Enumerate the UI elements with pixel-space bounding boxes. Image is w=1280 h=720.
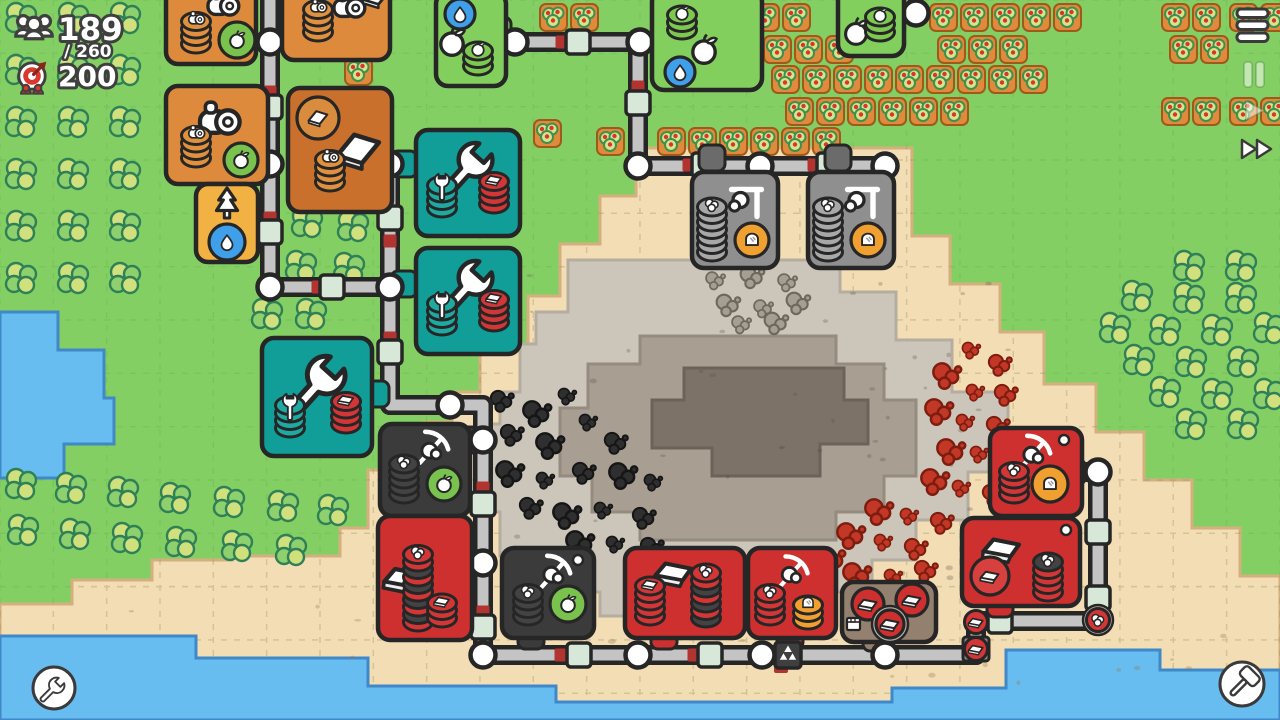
belt-node[interactable] bbox=[258, 275, 283, 300]
fruit-tile bbox=[783, 4, 810, 31]
fruit-tile bbox=[1162, 4, 1189, 31]
tree-cluster bbox=[110, 159, 140, 189]
fruit-tile bbox=[1054, 4, 1081, 31]
belt-node[interactable] bbox=[628, 30, 653, 55]
fruit-tile bbox=[1000, 36, 1027, 63]
fruit-tile bbox=[1193, 4, 1220, 31]
fruit-tile bbox=[795, 36, 822, 63]
belt-item bbox=[1083, 605, 1113, 635]
belt-item bbox=[965, 611, 988, 634]
tree-cluster bbox=[286, 251, 316, 281]
fruit-tile bbox=[969, 36, 996, 63]
hud-bottom-right bbox=[1196, 650, 1280, 720]
tree-cluster bbox=[222, 531, 252, 561]
fruit-tile bbox=[938, 36, 965, 63]
building-house[interactable] bbox=[282, 0, 390, 60]
tree-cluster bbox=[1228, 347, 1258, 377]
tree-cluster bbox=[60, 519, 90, 549]
belt-node[interactable] bbox=[471, 643, 496, 668]
fruit-tile bbox=[786, 98, 813, 125]
fruit-tile bbox=[930, 4, 957, 31]
goal-icon bbox=[19, 62, 47, 94]
game-map: 189 / 260 200 bbox=[0, 0, 1280, 720]
belt-connector[interactable] bbox=[258, 220, 282, 244]
fruit-tile bbox=[534, 120, 561, 147]
menu-icon bbox=[1237, 9, 1268, 42]
tree-cluster bbox=[318, 495, 348, 525]
tree-cluster bbox=[252, 299, 282, 329]
tree-cluster bbox=[58, 263, 88, 293]
tree-cluster bbox=[56, 473, 86, 503]
fruit-tile bbox=[772, 66, 799, 93]
fruit-tile bbox=[782, 128, 809, 155]
belt-node[interactable] bbox=[750, 643, 775, 668]
tree-cluster bbox=[112, 523, 142, 553]
fast-forward-button[interactable] bbox=[1242, 140, 1271, 158]
fruit-tile bbox=[658, 128, 685, 155]
fruit-tile bbox=[834, 66, 861, 93]
fruit-tile bbox=[1023, 4, 1050, 31]
fruit-tile bbox=[1170, 36, 1197, 63]
building-apple-farm[interactable] bbox=[838, 0, 904, 56]
tree-cluster bbox=[1202, 379, 1232, 409]
fruit-tile bbox=[848, 98, 875, 125]
tree-cluster bbox=[160, 483, 190, 513]
tree-cluster bbox=[296, 299, 326, 329]
belt-item bbox=[963, 637, 989, 661]
tree-cluster bbox=[1228, 409, 1258, 439]
belt-node[interactable] bbox=[378, 275, 403, 300]
fruit-tile bbox=[989, 66, 1016, 93]
belt-node[interactable] bbox=[1086, 460, 1111, 485]
pause-button[interactable] bbox=[1244, 62, 1264, 87]
belt-node[interactable] bbox=[626, 154, 651, 179]
tree-cluster bbox=[1174, 283, 1204, 313]
building-coal-mine[interactable] bbox=[380, 424, 470, 516]
menu-button[interactable] bbox=[1237, 9, 1268, 42]
building-stone-mine[interactable] bbox=[692, 172, 778, 268]
tree-cluster bbox=[1124, 345, 1154, 375]
building-apple-farm[interactable] bbox=[652, 0, 762, 90]
belt-connector[interactable] bbox=[698, 643, 722, 667]
tree-cluster bbox=[110, 263, 140, 293]
fruit-tile bbox=[992, 4, 1019, 31]
belt-connector[interactable] bbox=[1086, 520, 1110, 544]
building-apple-farm[interactable] bbox=[436, 0, 506, 86]
belt-band bbox=[384, 235, 397, 248]
fruit-tile bbox=[896, 66, 923, 93]
tree-cluster bbox=[1174, 251, 1204, 281]
belt-connector[interactable] bbox=[320, 275, 344, 299]
building-smelter[interactable] bbox=[962, 518, 1080, 606]
tree-cluster bbox=[214, 487, 244, 517]
fruit-tile bbox=[817, 98, 844, 125]
tree-cluster bbox=[1150, 315, 1180, 345]
tree-cluster bbox=[6, 211, 36, 241]
building-tool-factory[interactable] bbox=[416, 130, 520, 236]
tree-cluster bbox=[338, 211, 368, 241]
fruit-tile bbox=[1162, 98, 1189, 125]
fruit-tile bbox=[597, 128, 624, 155]
building-forester[interactable] bbox=[196, 184, 258, 262]
belt-node[interactable] bbox=[258, 30, 283, 55]
belt-node[interactable] bbox=[904, 1, 929, 26]
tree-cluster bbox=[166, 527, 196, 557]
fruit-tile bbox=[571, 4, 598, 31]
tree-cluster bbox=[108, 477, 138, 507]
belt-connector[interactable] bbox=[567, 643, 591, 667]
tree-cluster bbox=[58, 159, 88, 189]
fruit-tile bbox=[1020, 66, 1047, 93]
belt-connector[interactable] bbox=[626, 91, 650, 115]
tree-cluster bbox=[8, 515, 38, 545]
fast-forward-icon bbox=[1242, 140, 1271, 158]
fruit-tile bbox=[764, 36, 791, 63]
tree-cluster bbox=[6, 263, 36, 293]
belt-node[interactable] bbox=[873, 643, 898, 668]
tree-cluster bbox=[268, 491, 298, 521]
building-stone-mine[interactable] bbox=[808, 172, 894, 268]
belt-connector[interactable] bbox=[471, 615, 495, 639]
belt-connector[interactable] bbox=[378, 340, 402, 364]
hammer-build-button[interactable] bbox=[1220, 662, 1264, 706]
building-plank-factory[interactable] bbox=[288, 88, 392, 212]
building-iron-mine[interactable] bbox=[748, 548, 836, 638]
tree-cluster bbox=[1122, 281, 1152, 311]
pause-icon bbox=[1244, 62, 1264, 87]
building-port bbox=[699, 145, 725, 171]
lake bbox=[0, 312, 114, 478]
belt-node[interactable] bbox=[438, 393, 463, 418]
play-icon bbox=[1246, 101, 1264, 120]
fruit-tile bbox=[540, 4, 567, 31]
population-capacity: / 260 bbox=[64, 42, 112, 62]
fruit-tile bbox=[803, 66, 830, 93]
tree-cluster bbox=[1226, 283, 1256, 313]
goal-count: 200 bbox=[58, 60, 116, 93]
tree-cluster bbox=[1150, 377, 1180, 407]
sorter[interactable] bbox=[774, 642, 801, 673]
tree-cluster bbox=[1254, 379, 1280, 409]
hud-top-left: 189 / 260 200 bbox=[0, 0, 250, 130]
tree-cluster bbox=[1100, 313, 1130, 343]
fruit-tile bbox=[910, 98, 937, 125]
tree-cluster bbox=[276, 535, 306, 565]
building-tool-factory[interactable] bbox=[416, 248, 520, 354]
fruit-tile bbox=[927, 66, 954, 93]
tree-cluster bbox=[6, 159, 36, 189]
tree-cluster bbox=[110, 211, 140, 241]
hud-bottom-left bbox=[10, 650, 100, 720]
fruit-tile bbox=[958, 66, 985, 93]
belt-connector[interactable] bbox=[471, 492, 495, 516]
tree-cluster bbox=[1176, 347, 1206, 377]
building-coal-mine[interactable] bbox=[502, 548, 594, 638]
fruit-tile bbox=[941, 98, 968, 125]
tree-cluster bbox=[58, 211, 88, 241]
building-storage[interactable] bbox=[842, 582, 936, 642]
tree-cluster bbox=[1254, 313, 1280, 343]
tree-cluster bbox=[1202, 315, 1232, 345]
fruit-tile bbox=[865, 66, 892, 93]
building-smelter[interactable] bbox=[625, 548, 745, 638]
fruit-tile bbox=[879, 98, 906, 125]
building-port bbox=[825, 145, 851, 171]
tree-cluster bbox=[6, 469, 36, 499]
tree-cluster bbox=[1226, 251, 1256, 281]
hud-controls bbox=[1220, 0, 1280, 170]
fruit-tile bbox=[751, 128, 778, 155]
building-iron-mine[interactable] bbox=[990, 428, 1082, 516]
population-icon bbox=[16, 16, 52, 39]
building-smelter[interactable] bbox=[378, 516, 472, 640]
play-button[interactable] bbox=[1246, 101, 1264, 120]
wrench-tool-button[interactable] bbox=[33, 667, 75, 709]
fruit-tile bbox=[1193, 98, 1220, 125]
belt-node[interactable] bbox=[471, 428, 496, 453]
belt-node[interactable] bbox=[626, 643, 651, 668]
tree-cluster bbox=[1176, 409, 1206, 439]
fruit-tile bbox=[961, 4, 988, 31]
belt-connector[interactable] bbox=[566, 30, 590, 54]
building-tool-factory[interactable] bbox=[262, 338, 372, 456]
